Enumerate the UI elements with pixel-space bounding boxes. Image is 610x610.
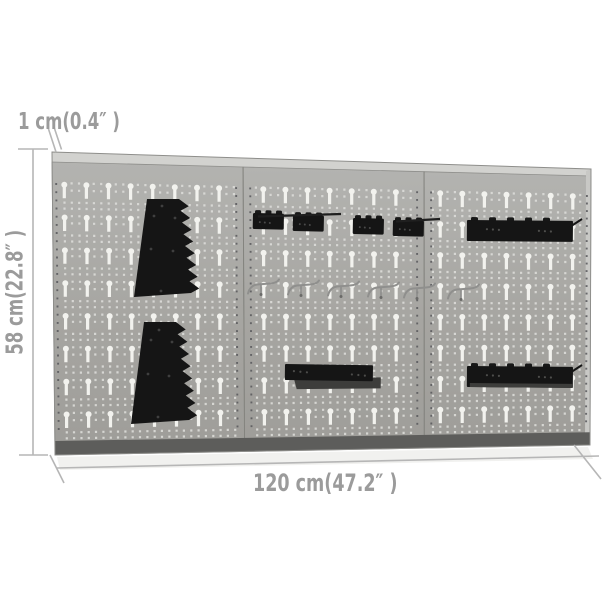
hook-rail-3-plate	[353, 218, 384, 235]
screwdriver-rack-lower-screw-hole	[168, 375, 171, 378]
screwdriver-rack-upper-screw-hole	[153, 215, 156, 218]
product-image: 1 cm(0.4″ ) 58 cm(22.8″ ) 120 cm(47.2″ )	[0, 0, 610, 610]
dimension-label-height: 58 cm(22.8″ )	[3, 242, 28, 354]
wire-hook-mount	[416, 297, 419, 300]
shelf-rail-right-bottom-hole	[498, 375, 500, 377]
shelf-rail-right-top-plate	[467, 220, 573, 242]
hook-rail-2-plate	[293, 215, 324, 232]
shelf-rail-right-bottom-hole	[550, 376, 552, 378]
screwdriver-rack-upper-screw-hole	[160, 290, 163, 293]
hook-rail-1	[253, 210, 284, 230]
dimension-label-width: 120 cm(47.2″ )	[253, 470, 397, 496]
shelf-rail-right-top-hole	[544, 230, 546, 232]
shelf-rail-right-top-hole	[498, 229, 500, 231]
screwdriver-rack-lower-screw-hole	[147, 373, 150, 376]
shelf-rail-right-top-hole	[550, 230, 552, 232]
dimension-label-thickness: 1 cm(0.4″ )	[18, 110, 120, 135]
shelf-bracket-middle	[285, 364, 381, 390]
screwdriver-rack-upper-screw-hole	[172, 250, 175, 253]
wire-hook-mount	[300, 294, 303, 297]
shelf-plate	[285, 364, 373, 381]
pegboard-scene	[0, 0, 610, 610]
hook-rail-3	[353, 215, 384, 235]
wire-hook-mount	[460, 298, 463, 301]
screwdriver-rack-lower-screw-hole	[157, 416, 160, 419]
wire-hook-mount	[380, 296, 383, 299]
wire-hook-mount	[260, 293, 263, 296]
shelf-rail-right-bottom-hole	[544, 376, 546, 378]
screwdriver-rack-lower-screw-hole	[158, 329, 161, 332]
screwdriver-rack-upper-screw-hole	[161, 205, 164, 208]
screwdriver-rack-upper-screw-hole	[150, 248, 153, 251]
shelf-rail-right-top-hole	[492, 228, 494, 230]
shelf-rail-right-top-hole	[538, 230, 540, 232]
shelf-rail-right-bottom-hole	[486, 374, 488, 376]
shelf-rail-right-bottom-hole	[538, 376, 540, 378]
screwdriver-rack-lower-screw-hole	[150, 339, 153, 342]
wire-hook-mount	[340, 295, 343, 298]
shelf-rail-right-bottom-hole	[492, 374, 494, 376]
screwdriver-rack-lower-screw-hole	[171, 341, 174, 344]
screwdriver-rack-upper-screw-hole	[174, 217, 177, 220]
shelf-rail-right-top-hole	[486, 228, 488, 230]
